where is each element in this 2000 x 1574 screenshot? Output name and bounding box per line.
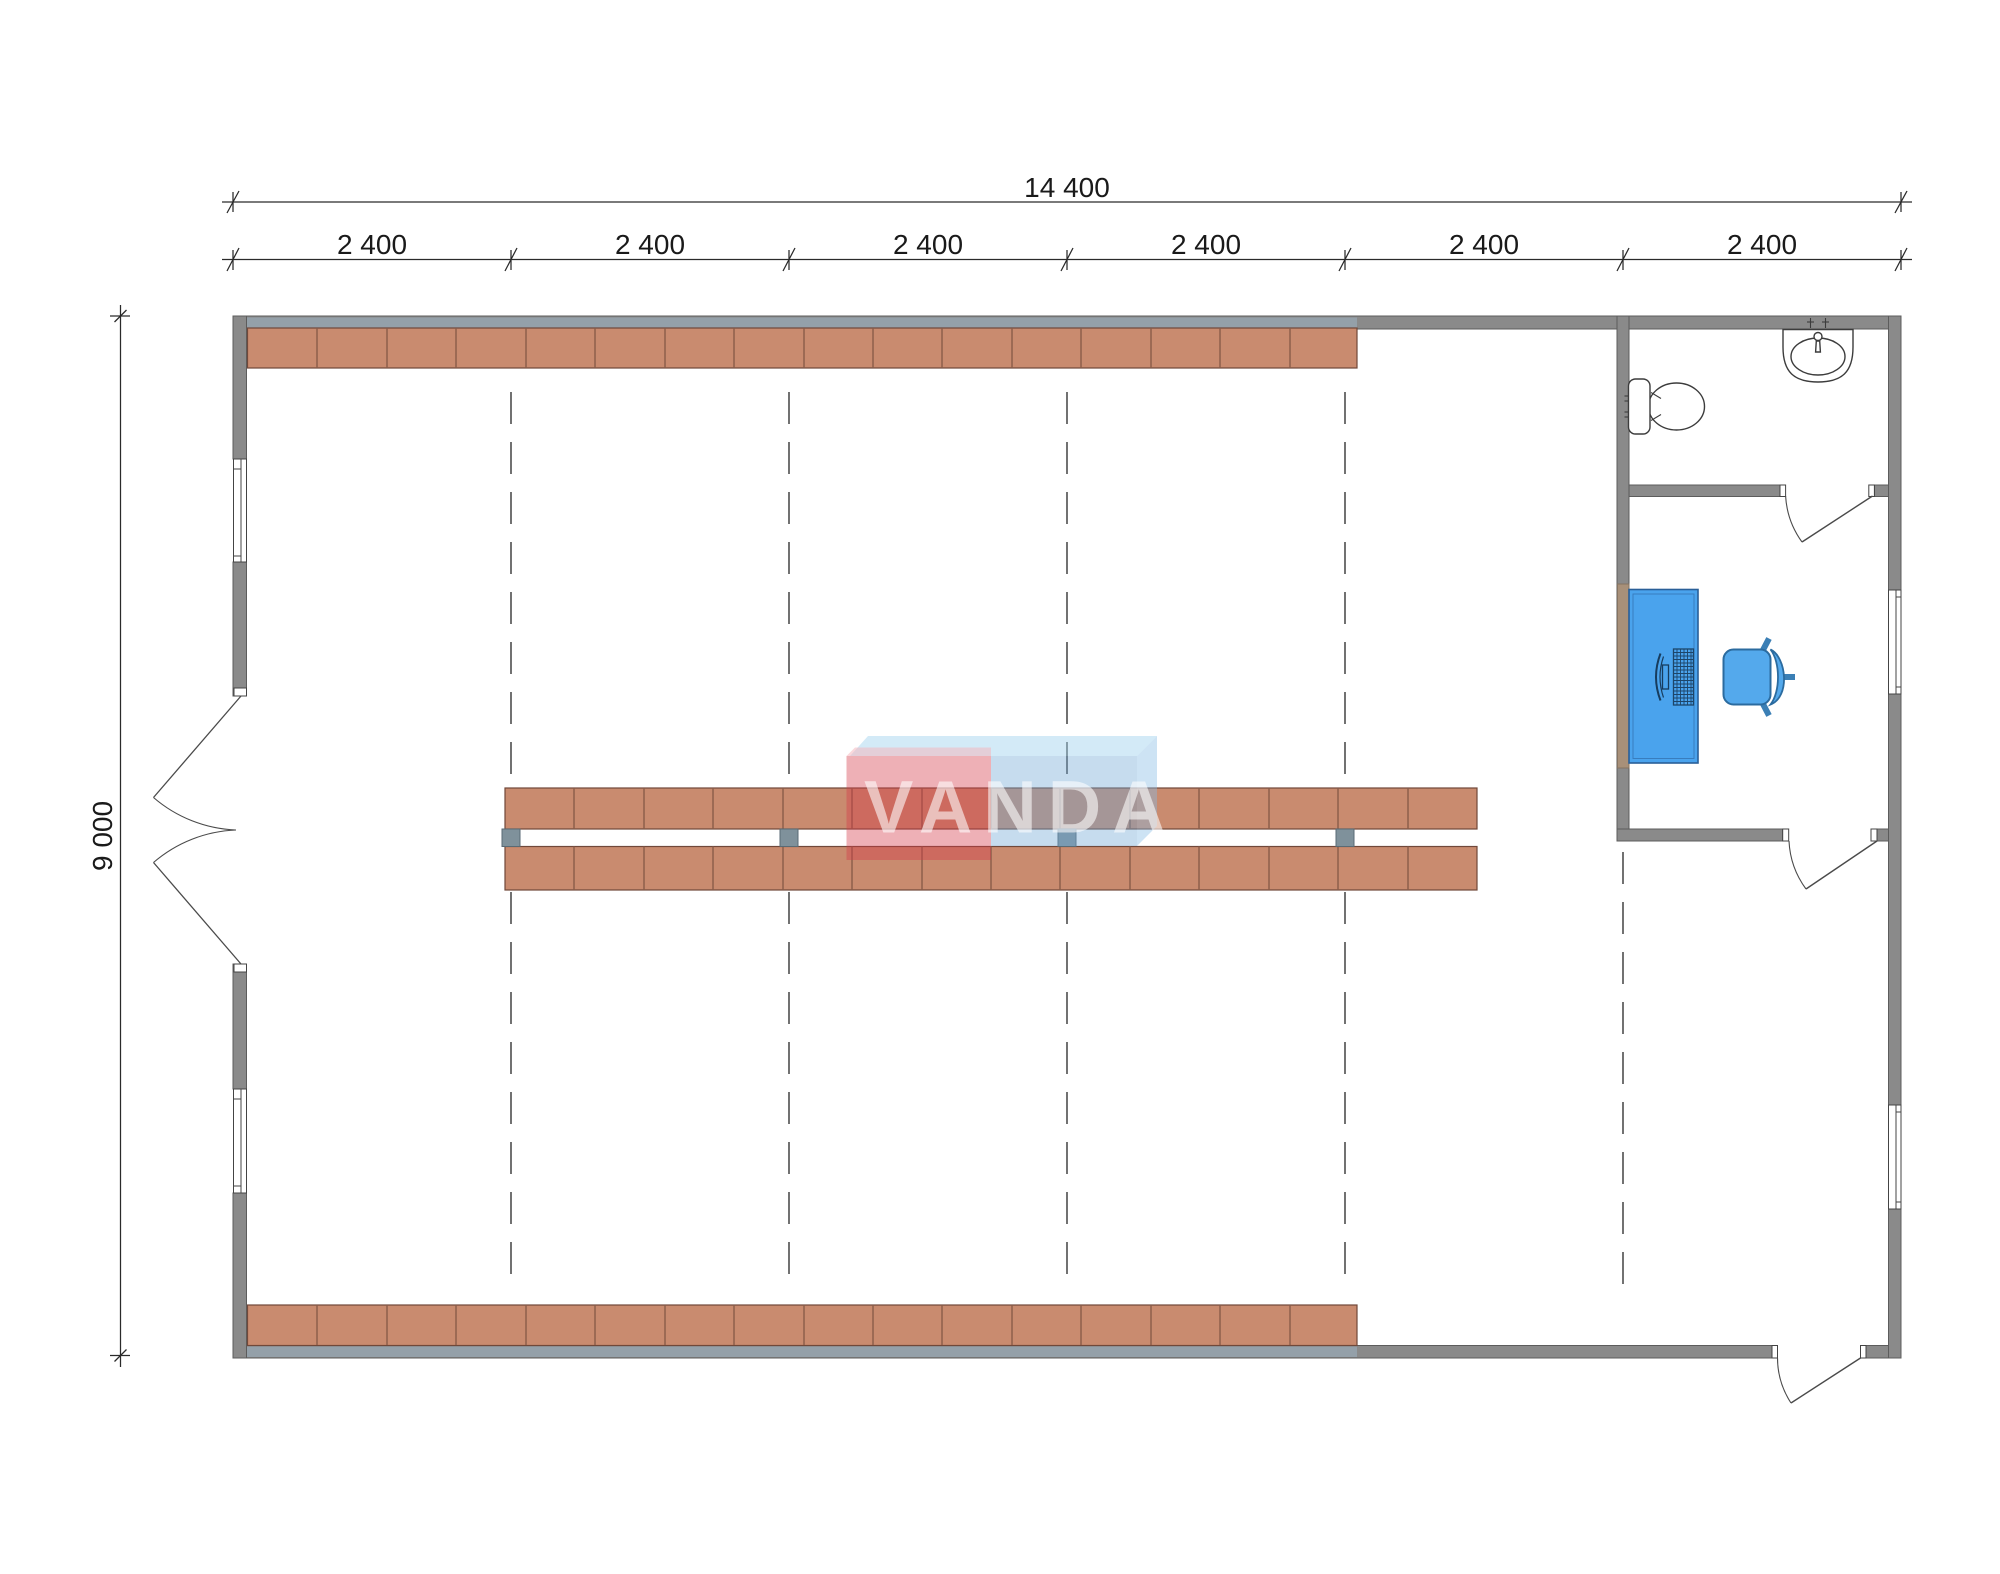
svg-text:2 400: 2 400 <box>1171 229 1241 260</box>
svg-text:2 400: 2 400 <box>337 229 407 260</box>
svg-text:2 400: 2 400 <box>893 229 963 260</box>
svg-text:14 400: 14 400 <box>1024 172 1110 203</box>
svg-text:2 400: 2 400 <box>1449 229 1519 260</box>
svg-text:9 000: 9 000 <box>87 801 118 871</box>
svg-text:VANDA: VANDA <box>864 766 1177 849</box>
svg-text:2 400: 2 400 <box>1727 229 1797 260</box>
svg-text:2 400: 2 400 <box>615 229 685 260</box>
